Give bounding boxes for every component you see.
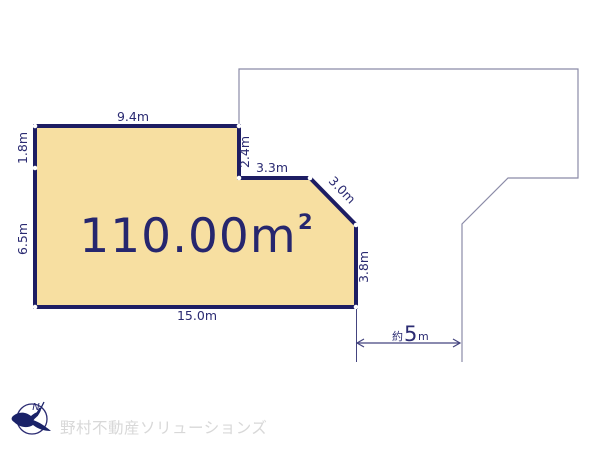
- dim-top-label: 9.4m: [117, 109, 149, 124]
- area-label: 110.00m: [79, 209, 296, 264]
- road-width-prefix: 約: [392, 329, 403, 343]
- vertex-dot: [237, 176, 242, 181]
- compass-north-label: N: [32, 402, 40, 413]
- company-watermark: 野村不動産ソリューションズ: [60, 419, 267, 437]
- dim-notch-vertical-label: 2.4m: [237, 136, 252, 168]
- vertex-dot: [33, 124, 38, 129]
- road-width-measurement: 約 5 m: [357, 309, 461, 362]
- land-plot-diagram: 110.00m 2 9.4m 1.8m 6.5m 2.4m 3.3m 3.0m …: [0, 0, 600, 450]
- area-superscript: 2: [298, 210, 313, 234]
- vertex-dot: [237, 124, 242, 129]
- vertex-dot: [354, 223, 359, 228]
- vertex-dot: [33, 305, 38, 310]
- vertex-dot: [354, 305, 359, 310]
- diagram-svg: 110.00m 2 9.4m 1.8m 6.5m 2.4m 3.3m 3.0m …: [0, 0, 600, 450]
- road-width-unit: m: [418, 330, 429, 343]
- vertex-dot: [33, 166, 38, 171]
- dim-left-upper-label: 1.8m: [15, 132, 30, 164]
- dim-notch-horizontal-label: 3.3m: [256, 160, 288, 175]
- compass: N: [12, 402, 51, 434]
- dim-left-lower-label: 6.5m: [15, 223, 30, 255]
- road-width-value: 5: [404, 322, 417, 346]
- dim-bottom-label: 15.0m: [177, 308, 217, 323]
- dim-right-label: 3.8m: [356, 251, 371, 283]
- vertex-dot: [308, 176, 313, 181]
